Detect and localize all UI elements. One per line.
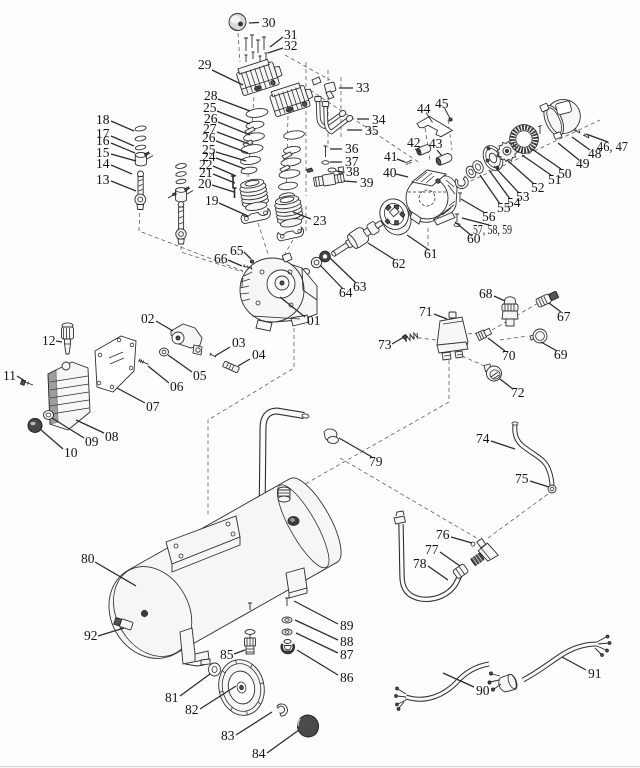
svg-text:04: 04	[252, 347, 266, 362]
svg-text:72: 72	[511, 385, 525, 400]
svg-text:02: 02	[141, 311, 155, 326]
svg-text:23: 23	[313, 213, 327, 228]
svg-text:44: 44	[417, 101, 431, 116]
svg-text:65: 65	[230, 243, 244, 258]
svg-text:48: 48	[588, 146, 602, 161]
svg-text:38: 38	[346, 164, 360, 179]
svg-text:12: 12	[42, 333, 56, 348]
svg-text:08: 08	[105, 429, 119, 444]
svg-text:77: 77	[425, 542, 439, 557]
svg-text:71: 71	[419, 304, 433, 319]
svg-text:01: 01	[307, 313, 321, 328]
svg-text:42: 42	[407, 135, 421, 150]
svg-text:69: 69	[554, 347, 568, 362]
svg-text:74: 74	[476, 431, 490, 446]
svg-text:03: 03	[232, 335, 246, 350]
svg-text:18: 18	[96, 112, 110, 127]
svg-text:73: 73	[378, 337, 392, 352]
svg-text:19: 19	[205, 193, 219, 208]
svg-text:75: 75	[515, 471, 529, 486]
svg-text:30: 30	[262, 15, 276, 30]
svg-text:20: 20	[198, 176, 212, 191]
svg-text:29: 29	[198, 57, 212, 72]
svg-text:09: 09	[85, 434, 99, 449]
svg-text:05: 05	[193, 368, 207, 383]
svg-text:43: 43	[429, 136, 443, 151]
svg-text:39: 39	[360, 175, 374, 190]
svg-text:68: 68	[479, 286, 493, 301]
svg-text:14: 14	[96, 156, 110, 171]
svg-text:66: 66	[214, 251, 228, 266]
svg-text:92: 92	[84, 628, 98, 643]
svg-text:76: 76	[436, 527, 450, 542]
svg-text:46, 47: 46, 47	[597, 139, 628, 154]
svg-text:40: 40	[383, 165, 397, 180]
svg-text:84: 84	[252, 746, 266, 761]
svg-text:91: 91	[588, 666, 602, 681]
svg-text:33: 33	[356, 80, 370, 95]
svg-text:78: 78	[413, 556, 427, 571]
svg-text:82: 82	[185, 702, 199, 717]
svg-text:41: 41	[384, 149, 398, 164]
svg-text:83: 83	[221, 728, 235, 743]
svg-text:49: 49	[576, 156, 590, 171]
svg-text:81: 81	[165, 690, 179, 705]
svg-text:07: 07	[146, 399, 160, 414]
svg-text:13: 13	[96, 172, 110, 187]
svg-text:89: 89	[340, 618, 354, 633]
svg-text:86: 86	[340, 670, 354, 685]
svg-text:87: 87	[340, 647, 354, 662]
svg-text:35: 35	[365, 123, 379, 138]
svg-text:45: 45	[435, 96, 449, 111]
svg-text:85: 85	[220, 647, 234, 662]
svg-text:52: 52	[531, 180, 545, 195]
svg-text:06: 06	[170, 379, 184, 394]
svg-text:10: 10	[64, 445, 78, 460]
svg-text:90: 90	[476, 683, 490, 698]
svg-text:62: 62	[392, 256, 406, 271]
svg-text:32: 32	[284, 38, 298, 53]
svg-text:11: 11	[3, 368, 16, 383]
svg-text:80: 80	[81, 551, 95, 566]
